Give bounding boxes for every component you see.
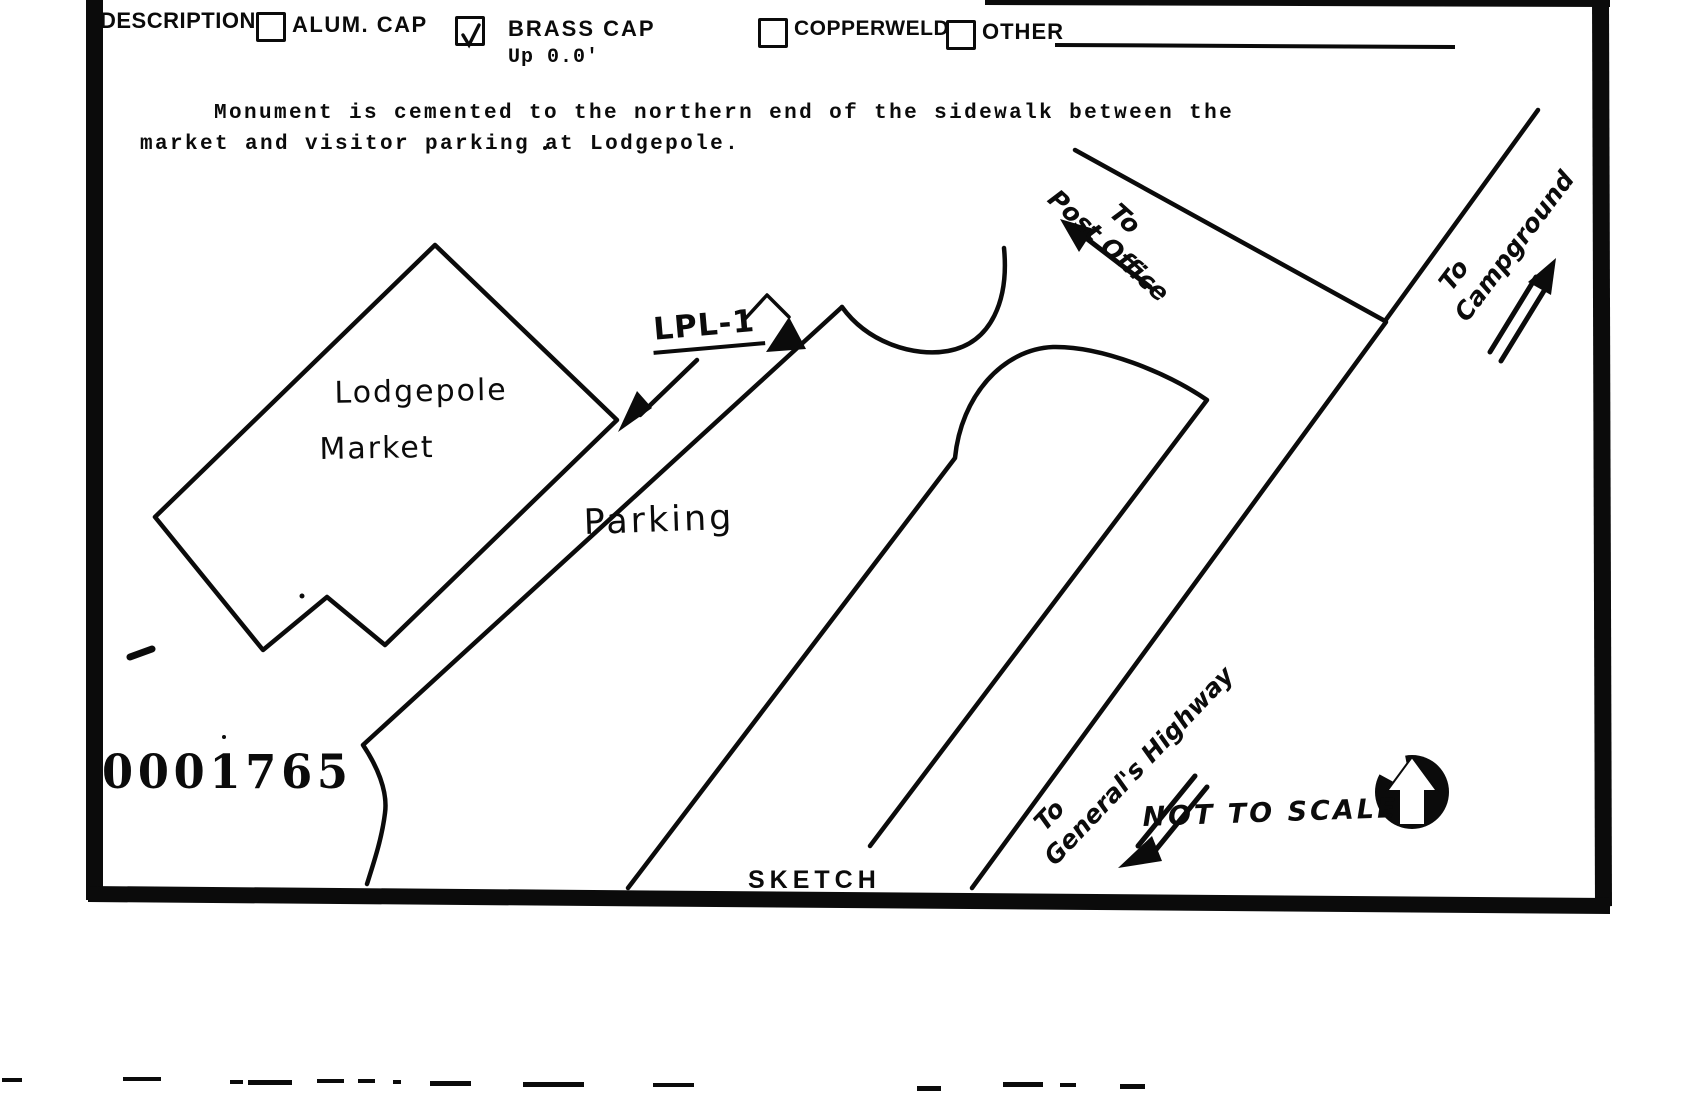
scan-artifact-dash bbox=[248, 1080, 292, 1085]
narrative-line-2: market and visitor parking at Lodgepole. bbox=[140, 129, 1234, 160]
scan-artifact-dash bbox=[1060, 1083, 1076, 1087]
scan-artifact-dash bbox=[123, 1077, 161, 1081]
narrative-line-1: Monument is cemented to the northern end… bbox=[140, 98, 1234, 129]
scan-speck bbox=[130, 649, 152, 657]
scan-artifact-dash bbox=[430, 1081, 471, 1086]
scale-note: NOT TO SCALE bbox=[1142, 793, 1399, 833]
scan-artifact-dash bbox=[1120, 1084, 1145, 1089]
monument-leader-line bbox=[640, 360, 697, 415]
road-label-generals-highway: To General's Highway bbox=[1015, 639, 1240, 872]
narrative-text: Monument is cemented to the northern end… bbox=[140, 98, 1234, 160]
checkbox-alum-cap bbox=[256, 12, 286, 42]
campground-arrowhead-icon bbox=[1528, 258, 1556, 295]
parking-label: Parking bbox=[583, 498, 735, 543]
scan-artifact-dash bbox=[393, 1080, 401, 1084]
monument-leader-arrowhead-icon bbox=[618, 391, 652, 432]
monument-triangle-icon bbox=[766, 317, 806, 352]
checkbox-copperweld bbox=[758, 18, 788, 48]
building-label-line-1: Lodgepole bbox=[318, 363, 508, 422]
monument-label: LPL-1 bbox=[650, 302, 765, 355]
checkbox-other-label: OTHER bbox=[982, 19, 1064, 45]
building-label-line-2: Market bbox=[319, 419, 509, 478]
scan-artifact-dash bbox=[1003, 1082, 1043, 1087]
scan-artifact-dash bbox=[317, 1079, 344, 1083]
scan-artifact-dash bbox=[230, 1080, 243, 1084]
checkbox-copperweld-label: COPPERWELD bbox=[794, 17, 949, 41]
sidewalk-entry-curve bbox=[842, 248, 1005, 352]
building-label: Lodgepole Market bbox=[318, 363, 509, 478]
checkbox-brass-cap bbox=[455, 16, 485, 46]
other-fill-in-line bbox=[1055, 43, 1455, 49]
checkbox-brass-cap-label: BRASS CAP bbox=[508, 16, 656, 42]
scan-artifact-dash bbox=[523, 1082, 584, 1087]
sketch-linework bbox=[0, 0, 1696, 1095]
stamp-number: 0001765 bbox=[102, 745, 353, 800]
scanned-monument-record-page: { "page": {"paper_color": "#ffffff", "in… bbox=[0, 0, 1696, 1095]
generals-highway-arrowhead-icon bbox=[1118, 836, 1162, 868]
checkbox-alum-cap-label: ALUM. CAP bbox=[292, 12, 428, 38]
description-label: DESCRIPTION: bbox=[100, 8, 264, 34]
brass-cap-note: Up 0.0' bbox=[508, 42, 599, 73]
scan-artifact-dash bbox=[653, 1083, 694, 1087]
road-label-campground: To Campground bbox=[1423, 146, 1581, 327]
scan-speck bbox=[300, 594, 305, 599]
road-label-generals-highway-line-2: General's Highway bbox=[1038, 660, 1240, 872]
check-mark-icon bbox=[460, 22, 484, 50]
scan-speck bbox=[222, 735, 226, 739]
scan-artifact-dash bbox=[358, 1079, 375, 1083]
scan-artifact-dash bbox=[917, 1086, 941, 1091]
road-label-post-office: To Post Office bbox=[1042, 160, 1197, 308]
checkbox-other bbox=[946, 20, 976, 50]
scan-artifact-dash bbox=[2, 1078, 22, 1082]
sketch-caption: SKETCH bbox=[748, 866, 881, 895]
